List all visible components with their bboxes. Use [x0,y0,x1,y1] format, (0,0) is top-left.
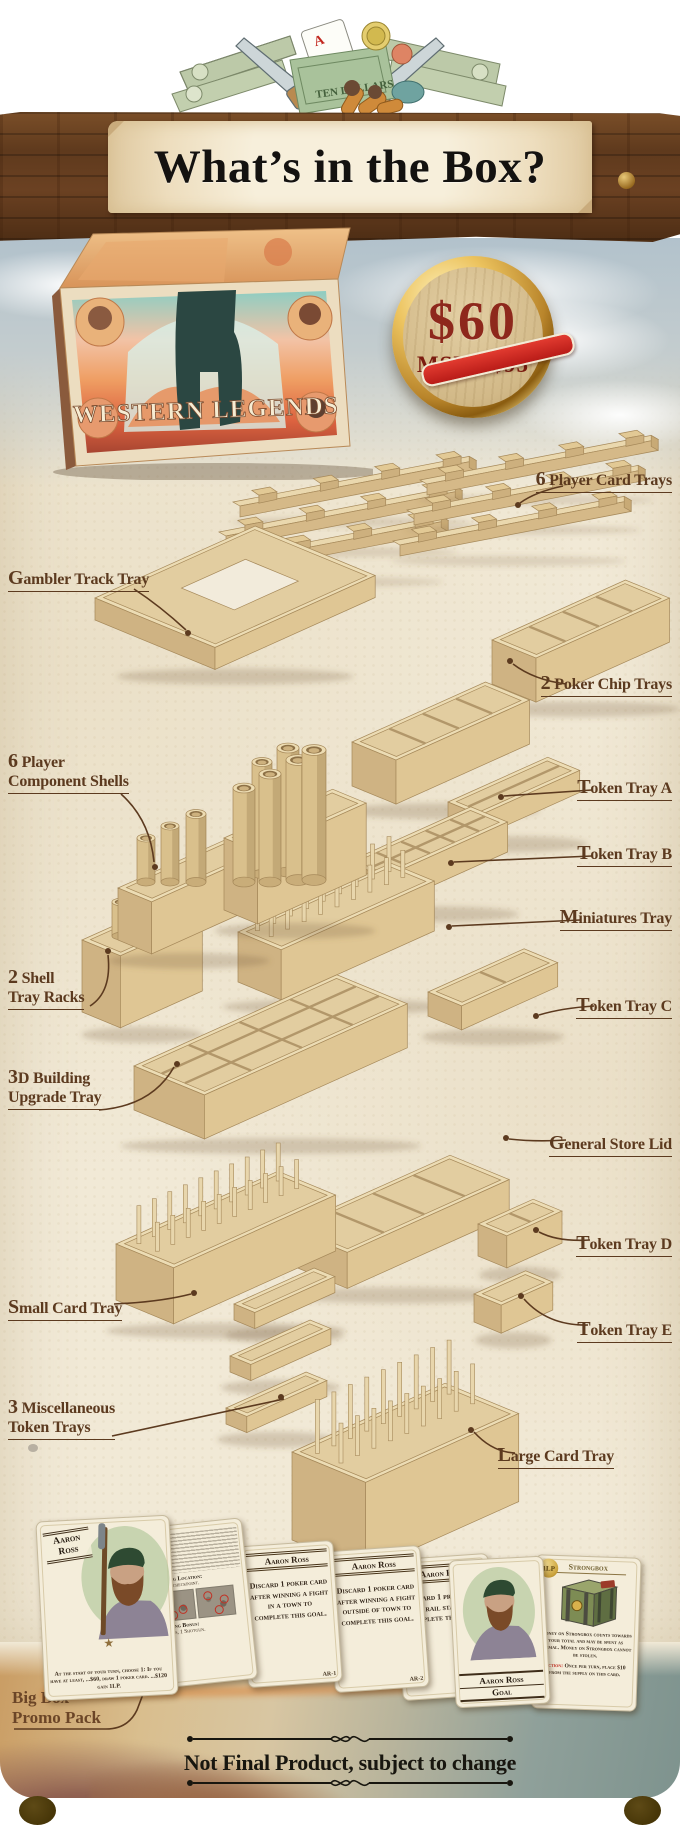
character-card-aaron-ross: Aaron Ross ★ At the start of your turn, … [35,1515,178,1702]
annotation-player-card-trays: 6 Player Card Trays [536,470,672,493]
annotation-gambler-track-tray: Gambler Track Tray [8,569,149,592]
annotation-miniatures-tray: Miniatures Tray [560,908,672,931]
annotation-token-tray-c: Token Tray C [576,996,672,1019]
annotation-building-upgrade-tray: 3D Building Upgrade Tray [8,1068,101,1110]
annotation-general-store-lid: General Store Lid [549,1134,672,1157]
goal-summary-card: Aaron Ross Goal [448,1556,551,1709]
promo-graphic-page: A TEN DOLLARS What’s in the Box? [0,0,680,1840]
footer-disclaimer: Not Final Product, subject to change [160,1732,540,1794]
annotation-poker-chip-trays: 2 Poker Chip Trays [541,674,672,697]
annotation-token-tray-e: Token Tray E [577,1320,672,1343]
goal-card-code: AR-1 [322,1671,336,1678]
decorative-rule-top [185,1732,515,1745]
annotation-token-tray-b: Token Tray B [577,844,672,867]
annotation-token-tray-d: Token Tray D [576,1234,672,1257]
annotation-large-card-tray: Large Card Tray [498,1446,614,1469]
annotation-component-shells: 6 Player Component Shells [8,752,129,794]
goal-portrait [457,1561,540,1661]
goal-summary-title: Aaron Ross Goal [459,1670,544,1702]
decorative-rule-bottom [185,1776,515,1789]
star-icon: ★ [103,1636,115,1652]
goal-card-code: AR-2 [409,1676,423,1683]
annotation-misc-token-trays: 3 Miscellaneous Token Trays [8,1398,115,1440]
disclaimer-text: Not Final Product, subject to change [160,1750,540,1776]
annotation-token-tray-a: Token Tray A [577,778,672,801]
annotation-shell-tray-racks: 2 Shell Tray Racks [8,968,84,1010]
annotation-small-card-tray: Small Card Tray [8,1298,122,1321]
